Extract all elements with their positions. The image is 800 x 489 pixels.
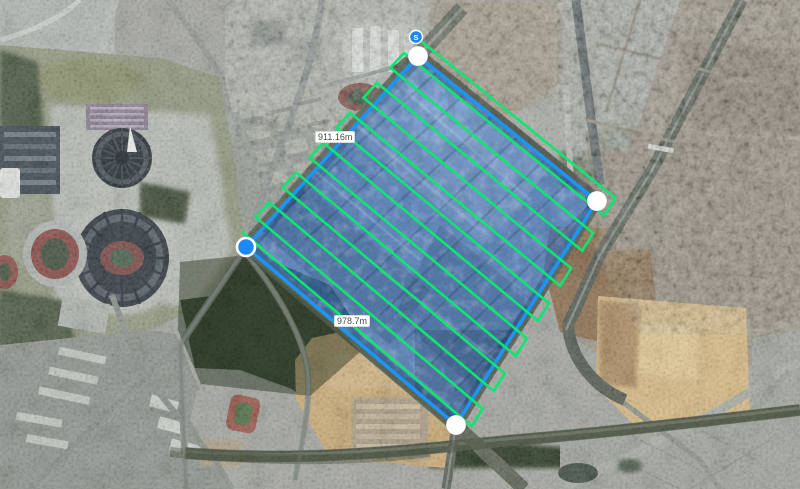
- svg-text:S: S: [413, 33, 418, 42]
